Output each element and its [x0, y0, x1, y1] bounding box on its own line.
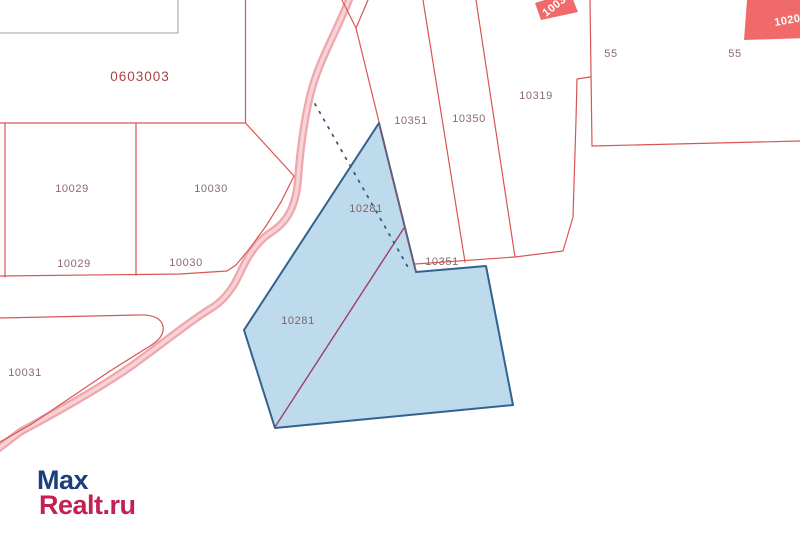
selected-parcel-shape[interactable] — [244, 123, 513, 428]
boundary-10350-10319-divider — [476, 0, 515, 257]
boundary-10351-left — [356, 0, 379, 122]
gray-block-lines — [0, 0, 178, 33]
parcel-label-10029: 10029 — [57, 258, 91, 270]
cadastral-map[interactable]: 1003 1020 060300310029100301002910030100… — [0, 0, 800, 547]
parcel-label-55: 55 — [604, 48, 617, 60]
parcel-label-10281: 10281 — [281, 315, 315, 327]
parcel-label-10319: 10319 — [519, 90, 553, 102]
boundary-55-bottom — [592, 141, 800, 146]
parcel-label-10029: 10029 — [55, 183, 89, 195]
parcel-label-10030: 10030 — [194, 183, 228, 195]
parcel-label-10351: 10351 — [425, 256, 459, 268]
parcel-label-10031: 10031 — [8, 367, 42, 379]
logo-line2: Realt.ru — [39, 493, 136, 518]
parcel-label-0603003: 0603003 — [110, 69, 170, 84]
parcel-label-10351: 10351 — [394, 115, 428, 127]
selected-parcel-10281[interactable] — [244, 104, 513, 428]
parcel-label-55: 55 — [728, 48, 741, 60]
parcel-label-10030: 10030 — [169, 257, 203, 269]
parcel-label-10350: 10350 — [452, 113, 486, 125]
boundary-10030-apex — [246, 123, 295, 176]
boundary-10351-10350-divider — [423, 0, 465, 262]
boundary-row-bottom — [0, 271, 227, 276]
boundary-55-left — [590, 0, 592, 146]
red-badge-parcels: 1003 1020 — [535, 0, 800, 40]
maxrealt-logo[interactable]: Max Realt.ru — [37, 468, 136, 518]
boundary-10319-bottom-right — [415, 77, 590, 264]
parcel-label-10281: 10281 — [349, 203, 383, 215]
